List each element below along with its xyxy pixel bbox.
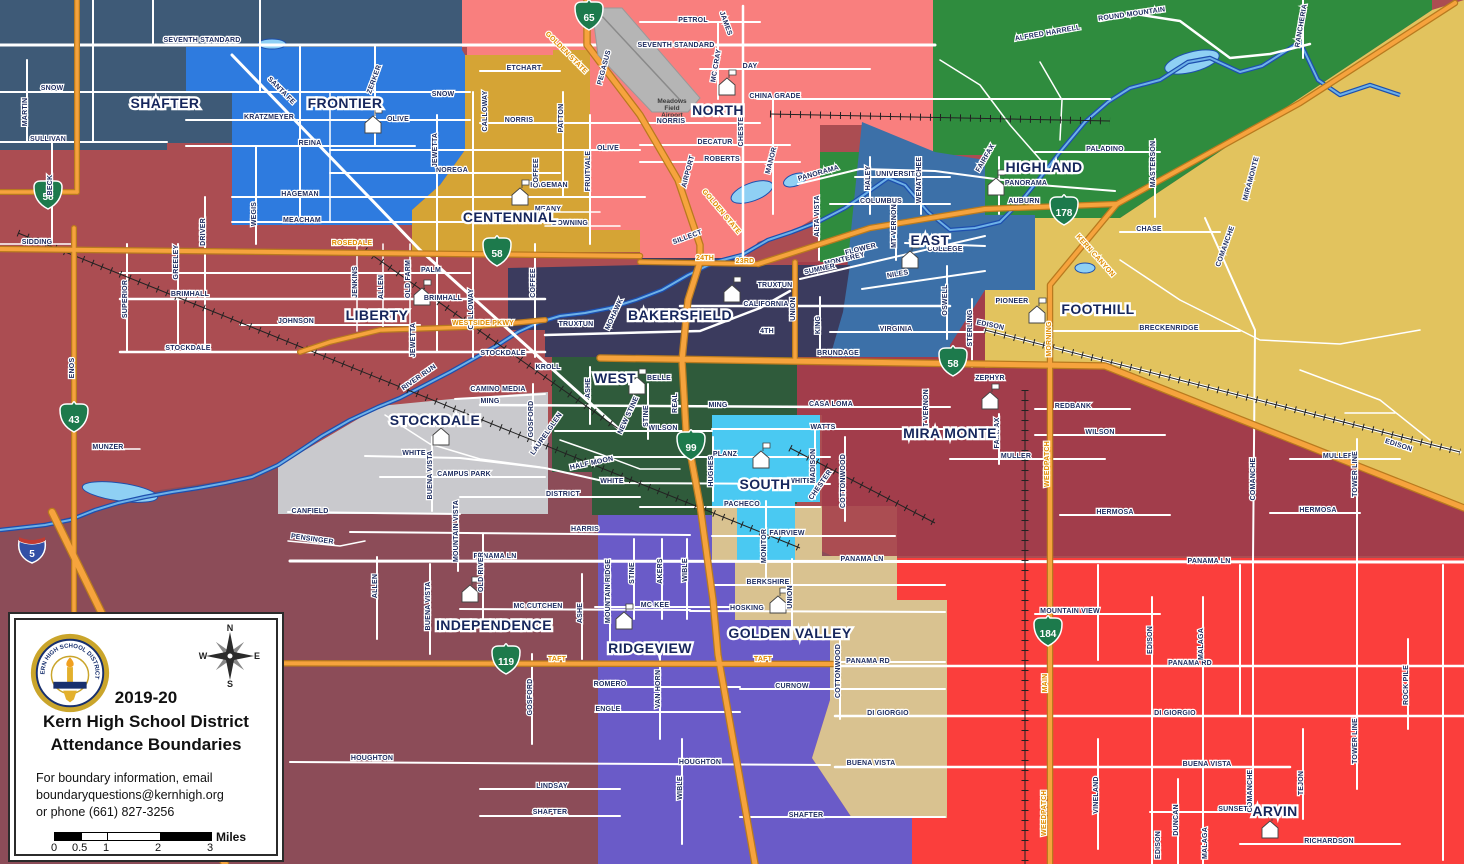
svg-text:58: 58 (491, 249, 503, 260)
road-label: HERMOSA (1096, 509, 1133, 516)
road-label: PANORAMA (1005, 180, 1047, 187)
scale-bar-strip (54, 832, 212, 841)
road-label: MC CUTCHEN (513, 603, 562, 610)
district-label-stockdale: STOCKDALE (390, 412, 480, 428)
district-label-independence: INDEPENDENCE (436, 617, 552, 633)
road-label: FRUITVALE (585, 151, 592, 192)
road-label: BRIMHALL (424, 295, 463, 302)
legend-subtitle: Attendance Boundaries (18, 735, 274, 755)
road-label: OLD RIVER (478, 552, 485, 592)
road-label: MOUNTAIN RIDGE (605, 559, 612, 623)
road-label: SIDDING (22, 239, 53, 246)
legend-inner: KERN HIGH SCHOOL DISTRICT N E S W 2019-2… (18, 622, 274, 852)
road-label: MARTIN (22, 98, 29, 126)
road-label: HOUGHTON (351, 755, 393, 762)
road-label: ZEPHYR (975, 375, 1005, 382)
road-label: REINA (299, 140, 322, 147)
road-label: UNION (787, 585, 794, 609)
road-label: DECATUR (697, 139, 732, 146)
svg-text:5: 5 (29, 549, 35, 560)
road-label: HERMOSA (1299, 507, 1336, 514)
road-label: GREELEY (173, 244, 180, 279)
scale-tick: 3 (207, 842, 213, 854)
road-label: STINE (643, 405, 650, 427)
district-label-north: NORTH (692, 102, 744, 118)
road (460, 609, 690, 610)
road-label: MALAGA (1202, 827, 1209, 859)
road-label: OLIVE (387, 116, 409, 123)
airport-label: Meadows (657, 98, 687, 105)
district-label-arvin: ARVIN (1252, 803, 1297, 819)
road-label: ROMERO (594, 681, 627, 688)
road-label: CHINA GRADE (749, 93, 800, 100)
scale-tick: 0 (51, 842, 57, 854)
road-label: PANAMA RD (1168, 660, 1212, 667)
legend-year: 2019-20 (18, 688, 274, 708)
scale-bar: 0 0.5 1 2 3 Miles (48, 832, 268, 858)
road-label: EDISON (1147, 626, 1154, 654)
road-label: ROCK PILE (1403, 665, 1410, 705)
road-label: SEVENTH STANDARD (164, 37, 241, 44)
road-label: PANAMA RD (846, 658, 890, 665)
lake (1075, 263, 1095, 273)
compass-hub (227, 653, 233, 659)
road-label: NORRIS (505, 117, 534, 124)
road-label: MING (708, 402, 727, 409)
road-label: TRUXTUN (559, 321, 594, 328)
road-label: COLUMBUS (860, 198, 902, 205)
scale-segment (55, 833, 81, 840)
road-label: TAFT (754, 656, 773, 663)
district-label-highland: HIGHLAND (1005, 159, 1082, 175)
road-label: WILSON (648, 425, 677, 432)
road-label: NORRIS (657, 118, 686, 125)
district-label-frontier: FRONTIER (308, 95, 383, 111)
legend-title-block: 2019-20 Kern High School District Attend… (18, 688, 274, 755)
road-label: DISTRICT (546, 491, 580, 498)
road-label: KROLL (535, 364, 561, 371)
road-label: DI GIORGIO (1154, 710, 1196, 717)
road-label: JEWETTA (410, 323, 417, 357)
road-label: STINE (629, 562, 636, 584)
road-label: ETCHART (507, 65, 542, 72)
road-label: SNOW (41, 85, 64, 92)
road-label: OLIVE (597, 145, 619, 152)
road-label: MADISON (810, 449, 817, 483)
road-label: MT VERNON (891, 204, 898, 248)
road-label: WHITE (600, 478, 624, 485)
road-label: COTTONWOOD (835, 644, 842, 698)
road-label: MASTERSON (1150, 141, 1157, 188)
road-label: AUBURN (1008, 198, 1040, 205)
road-label: BUENA VISTA (425, 582, 432, 631)
svg-text:178: 178 (1056, 208, 1073, 219)
district-label-liberty: LIBERTY (346, 307, 409, 323)
road-label: TEJON (1298, 771, 1305, 795)
road-label: WEGIS (251, 202, 258, 226)
svg-text:119: 119 (498, 657, 515, 668)
road-label: 24TH (696, 255, 714, 262)
road-label: HAGEMAN (281, 191, 319, 198)
road-label: TRUXTUN (758, 282, 793, 289)
compass-w: W (199, 651, 208, 661)
road-label: CAMINO MEDIA (470, 386, 525, 393)
road-label: VAN HORN (655, 670, 662, 708)
road-label: COTTONWOOD (840, 454, 847, 508)
road-label: CAMPUS PARK (437, 471, 491, 478)
road-label: PATTON (558, 104, 565, 133)
road-label: OSWELL (942, 284, 949, 316)
district-label-ridgeview: RIDGEVIEW (608, 640, 692, 656)
road-label: PLANZ (713, 451, 738, 458)
road-label: PALM (421, 267, 441, 274)
legend-org-name: Kern High School District (18, 712, 274, 732)
district-label-shafter: SHAFTER (131, 95, 200, 111)
compass-rose: N E S W (198, 624, 262, 688)
scale-segment (107, 833, 159, 840)
road-label: COFFEE (533, 158, 540, 188)
road-label: ENOS (69, 358, 76, 379)
road-label: HOUGHTON (679, 759, 721, 766)
road-label: UNIVERSITY (876, 171, 920, 178)
road-label: DRIVER (200, 218, 207, 246)
district-label-foothill: FOOTHILL (1061, 301, 1134, 317)
road-label: BRIMHALL (171, 291, 210, 298)
road-label: DI GIORGIO (867, 710, 909, 717)
road-label: WHITE (402, 450, 426, 457)
compass-s: S (227, 679, 233, 688)
road-label: WHITE (788, 478, 812, 485)
road-label: VIRGINIA (880, 326, 913, 333)
road-label: ROSEDALE (332, 240, 373, 247)
road-label: JEWETTA (432, 133, 439, 167)
contact-email: boundaryquestions@kernhigh.org (36, 787, 224, 804)
road-label: REAL (672, 393, 679, 413)
road-label: VINELAND (1093, 776, 1100, 813)
scale-tick: 2 (155, 842, 161, 854)
road-label: TAFT (548, 656, 567, 663)
road-label: FAIRVIEW (769, 530, 805, 537)
road-label: CHASE (1136, 226, 1162, 233)
road-label: PACHECO (724, 501, 760, 508)
road-label: GOSFORD (527, 679, 534, 716)
scale-miles-label: Miles (216, 830, 246, 844)
road-label: MONITOR (761, 529, 768, 563)
svg-text:99: 99 (685, 443, 697, 454)
road-label: BUENA VISTA (1183, 761, 1232, 768)
road-label: ALTA VISTA (814, 195, 821, 236)
road-label: JENKINS (352, 266, 359, 298)
scale-tick: 1 (103, 842, 109, 854)
svg-text:58: 58 (947, 359, 959, 370)
road-label: BUENA VISTA (847, 760, 896, 767)
road-label: LINDSAY (536, 783, 568, 790)
road-label: SHAFTER (533, 809, 567, 816)
compass-e: E (254, 651, 260, 661)
legend-contact-info: For boundary information, email boundary… (36, 770, 224, 821)
torch-icon (67, 667, 73, 683)
svg-text:43: 43 (68, 415, 80, 426)
road-label: WILSON (1085, 429, 1114, 436)
district-label-south: SOUTH (740, 476, 791, 492)
road-label: STOCKDALE (480, 350, 525, 357)
road-label: KRATZMEYER (244, 114, 294, 121)
district-label-centennial: CENTENNIAL (463, 209, 557, 225)
road-label: ALLEN (378, 275, 385, 299)
road-label: CALIFORNIA (743, 301, 788, 308)
road-label: WENATCHEE (916, 157, 923, 204)
road-label: ASHE (585, 378, 592, 398)
road-label: PANAMA LN (840, 556, 883, 563)
attendance-boundary-map: MeadowsFieldAirport655858584399178119184… (0, 0, 1464, 864)
district-label-miramonte: MIRA MONTE (903, 425, 997, 441)
scale-segment (160, 833, 211, 840)
road-label: MEACHAM (283, 217, 321, 224)
road-label: MUNZER (92, 444, 123, 451)
road-label: UNION (790, 297, 797, 321)
road-label: HARRIS (571, 526, 599, 533)
road-label: SUNSET (1218, 806, 1248, 813)
road-label: BUENA VISTA (427, 451, 434, 500)
road-label: CASA LOMA (809, 401, 853, 408)
road-label: ALLEN (372, 574, 379, 598)
road-label: COFFEE (530, 268, 537, 298)
road-label: HALEY (865, 166, 872, 191)
svg-text:65: 65 (583, 13, 595, 24)
road-label: CANFIELD (292, 508, 329, 515)
road-label: BRUNDAGE (817, 350, 859, 357)
scale-segment (81, 833, 108, 840)
road-label: BERKSHIRE (746, 579, 789, 586)
district-label-west: WEST (594, 370, 636, 386)
road-label: TOWER LINE (1352, 718, 1359, 764)
road-label: TOWER LINE (1352, 451, 1359, 497)
airport-label: Field (664, 105, 679, 112)
road-label: HUGHES (708, 455, 715, 486)
road-label: WEEDPATCH (1041, 790, 1048, 836)
road-label: MOUNTAIN VISTA (453, 500, 460, 562)
legend-box: KERN HIGH SCHOOL DISTRICT N E S W 2019-2… (8, 612, 284, 862)
road-label: STOCKDALE (165, 345, 210, 352)
road-label: RICHARDSON (1304, 838, 1353, 845)
road-label: MALAGA (1198, 628, 1205, 660)
svg-text:184: 184 (1040, 629, 1057, 640)
road-label: CALLOWAY (482, 90, 489, 131)
road-label: COMANCHE (1250, 457, 1257, 500)
road-label: MAIN (1042, 674, 1049, 693)
road-label: SUPERIOR (122, 280, 129, 318)
road (690, 611, 945, 612)
road-label: MC KEE (641, 602, 670, 609)
road-label: AKERS (657, 558, 664, 584)
road-label: WIBLE (682, 558, 689, 582)
road-label: DAY (743, 63, 758, 70)
road-label: MING (480, 398, 499, 405)
road-label: MORNING (1046, 321, 1053, 357)
road-label: REDBANK (1055, 403, 1091, 410)
road-label: GOSFORD (528, 401, 535, 438)
road-label: SNOW (432, 91, 455, 98)
road-label: PETROL (678, 17, 708, 24)
road-label: BRECKENRIDGE (1139, 325, 1198, 332)
contact-line-1: For boundary information, email (36, 770, 224, 787)
road-label: NOREGA (436, 167, 468, 174)
road-label: OLD FARM (405, 260, 412, 298)
road-label: BECK (47, 175, 54, 196)
road-label: PIONEER (996, 298, 1029, 305)
road-label: HOSKING (730, 605, 764, 612)
road-label: PALADINO (1086, 146, 1124, 153)
district-label-east: EAST (911, 232, 950, 248)
road-label: STERLING (967, 309, 974, 346)
road-label: MOUNTAIN VIEW (1040, 608, 1100, 615)
road-label: WESTSIDE PKWY (452, 320, 514, 327)
road-label: SEVENTH STANDARD (638, 42, 715, 49)
road-label: EDISON (1155, 831, 1162, 859)
district-label-goldenvalley: GOLDEN VALLEY (728, 625, 851, 641)
road-label: ENGLE (595, 706, 620, 713)
road-label: DOWNING (552, 220, 588, 227)
road-label: KING (815, 316, 822, 335)
compass-n: N (227, 624, 234, 633)
contact-phone: or phone (661) 827-3256 (36, 804, 224, 821)
road-label: JOHNSON (278, 318, 314, 325)
road-label: WEEDPATCH (1044, 441, 1051, 487)
road-label: CURNOW (775, 683, 809, 690)
road-label: DUNCAN (1173, 804, 1180, 836)
road-label: WATTS (811, 424, 836, 431)
scale-tick: 0.5 (72, 842, 87, 854)
road-label: ASHE (577, 603, 584, 623)
district-label-bakersfield: BAKERSFIELD (628, 307, 732, 323)
road-label: MULLER (1323, 453, 1353, 460)
road-label: 23RD (736, 258, 755, 265)
road-label: PANAMA LN (1187, 558, 1230, 565)
road-label: BELLE (647, 375, 671, 382)
road-label: WIBLE (677, 776, 684, 800)
road-label: SULLIVAN (30, 136, 66, 143)
road-label: ROBERTS (704, 156, 740, 163)
road-label: MULLER (1001, 453, 1031, 460)
road-label: 4TH (760, 328, 774, 335)
road-label: SHAFTER (789, 812, 823, 819)
